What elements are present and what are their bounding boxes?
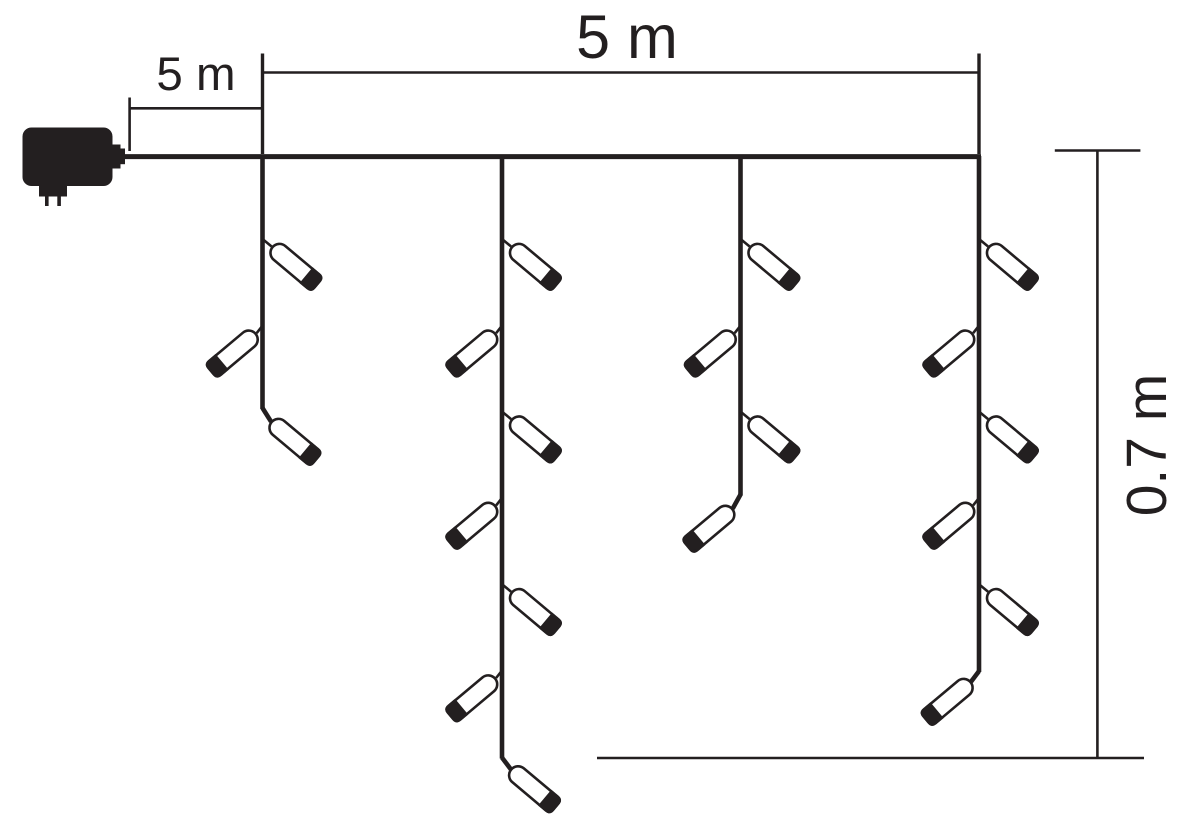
svg-text:5 m: 5 m xyxy=(576,3,678,71)
svg-text:5 m: 5 m xyxy=(156,48,235,101)
svg-text:0.7 m: 0.7 m xyxy=(1115,374,1179,517)
